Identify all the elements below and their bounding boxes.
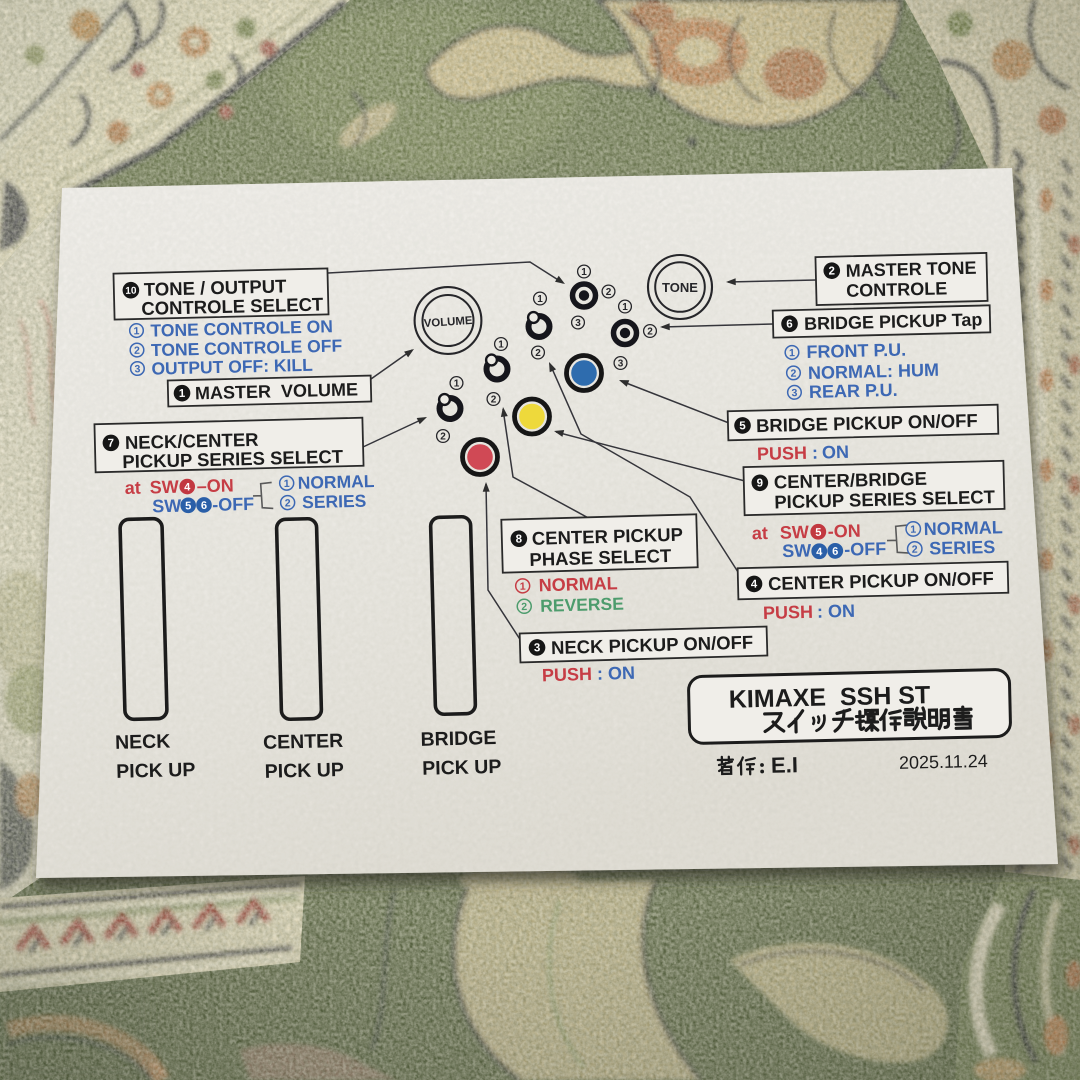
svg-text:5: 5	[739, 420, 746, 432]
svg-text:SW: SW	[782, 540, 811, 561]
svg-text:1: 1	[133, 325, 139, 337]
svg-text:ON: ON	[828, 601, 855, 622]
svg-text:PICK UP: PICK UP	[422, 756, 502, 780]
svg-text:SW: SW	[780, 522, 809, 543]
svg-text:1: 1	[179, 388, 186, 400]
svg-text:E.I: E.I	[771, 752, 798, 778]
svg-text:3: 3	[134, 363, 140, 375]
svg-text:2: 2	[790, 368, 796, 380]
svg-text:2: 2	[491, 395, 497, 406]
svg-text:1: 1	[498, 340, 504, 351]
svg-text::: :	[817, 602, 823, 622]
svg-text:MASTER TONE: MASTER TONE	[846, 258, 977, 281]
svg-text:2: 2	[912, 544, 918, 556]
svg-text:BRIDGE: BRIDGE	[420, 727, 496, 751]
svg-text:2: 2	[828, 265, 835, 277]
svg-text:10: 10	[125, 286, 137, 297]
svg-text:OUTPUT OFF: KILL: OUTPUT OFF: KILL	[151, 355, 313, 379]
svg-text:2: 2	[285, 497, 291, 509]
svg-text:2: 2	[521, 601, 527, 613]
svg-text:6: 6	[832, 546, 838, 558]
svg-text:CONTROLE SELECT: CONTROLE SELECT	[141, 293, 324, 318]
svg-text:-OFF: -OFF	[844, 539, 886, 560]
svg-text:PHASE SELECT: PHASE SELECT	[529, 545, 672, 570]
svg-text:8: 8	[516, 533, 523, 545]
svg-text:1: 1	[520, 581, 526, 593]
svg-text:PICK UP: PICK UP	[116, 759, 196, 783]
svg-text:TONE: TONE	[662, 280, 698, 295]
svg-text:ON: ON	[822, 442, 849, 463]
svg-text:-OFF: -OFF	[212, 494, 254, 515]
svg-text:PUSH: PUSH	[542, 664, 593, 685]
svg-text::: :	[812, 443, 818, 463]
svg-text:KIMAXE SSH ST: KIMAXE SSH ST	[729, 681, 931, 714]
svg-text:–ON: –ON	[196, 475, 233, 496]
svg-text:4: 4	[751, 579, 758, 591]
svg-text:3: 3	[618, 359, 624, 370]
svg-text:6: 6	[786, 318, 793, 330]
svg-text:CENTER: CENTER	[263, 730, 344, 754]
svg-text:NORMAL: NORMAL	[297, 471, 375, 493]
svg-text::: :	[597, 664, 604, 684]
svg-text:2: 2	[535, 348, 541, 359]
svg-text:SW: SW	[152, 496, 181, 517]
svg-text:SW: SW	[149, 477, 178, 498]
svg-text:REAR P.U.: REAR P.U.	[809, 380, 898, 402]
svg-text:2: 2	[647, 327, 653, 338]
svg-text:NECK: NECK	[115, 731, 171, 754]
svg-text:3: 3	[575, 318, 581, 329]
svg-text:NORMAL: NORMAL	[924, 517, 1003, 539]
svg-text:2: 2	[606, 287, 612, 298]
svg-text:PICK UP: PICK UP	[265, 759, 345, 783]
svg-text:1: 1	[537, 294, 543, 305]
svg-text:SERIES: SERIES	[929, 537, 996, 559]
svg-text:1: 1	[622, 302, 628, 313]
svg-text:2: 2	[134, 345, 140, 357]
svg-text:MASTER VOLUME: MASTER VOLUME	[195, 379, 358, 403]
svg-text:1: 1	[581, 267, 587, 278]
svg-text:at: at	[124, 478, 140, 498]
svg-text:CONTROLE: CONTROLE	[846, 278, 947, 300]
svg-text:at: at	[752, 523, 768, 543]
svg-text:2025.11.24: 2025.11.24	[899, 751, 988, 773]
svg-text:NORMAL: NORMAL	[538, 573, 618, 595]
svg-text:3: 3	[791, 387, 797, 399]
svg-text:1: 1	[910, 524, 916, 536]
svg-text:7: 7	[108, 438, 115, 450]
svg-text:1: 1	[284, 478, 290, 490]
svg-text:1: 1	[789, 347, 795, 359]
svg-text:REVERSE: REVERSE	[540, 594, 624, 616]
svg-text:ON: ON	[608, 663, 636, 684]
svg-text:5: 5	[815, 527, 821, 539]
svg-text:2: 2	[440, 432, 446, 443]
svg-text:3: 3	[534, 642, 541, 654]
svg-text:9: 9	[757, 478, 764, 490]
svg-text:5: 5	[185, 500, 191, 512]
svg-text:PUSH: PUSH	[763, 602, 813, 623]
svg-text:1: 1	[454, 379, 460, 390]
svg-text:FRONT P.U.: FRONT P.U.	[806, 340, 906, 362]
svg-text:6: 6	[201, 500, 207, 512]
svg-text:PUSH: PUSH	[757, 443, 807, 464]
svg-text:SERIES: SERIES	[302, 491, 367, 513]
